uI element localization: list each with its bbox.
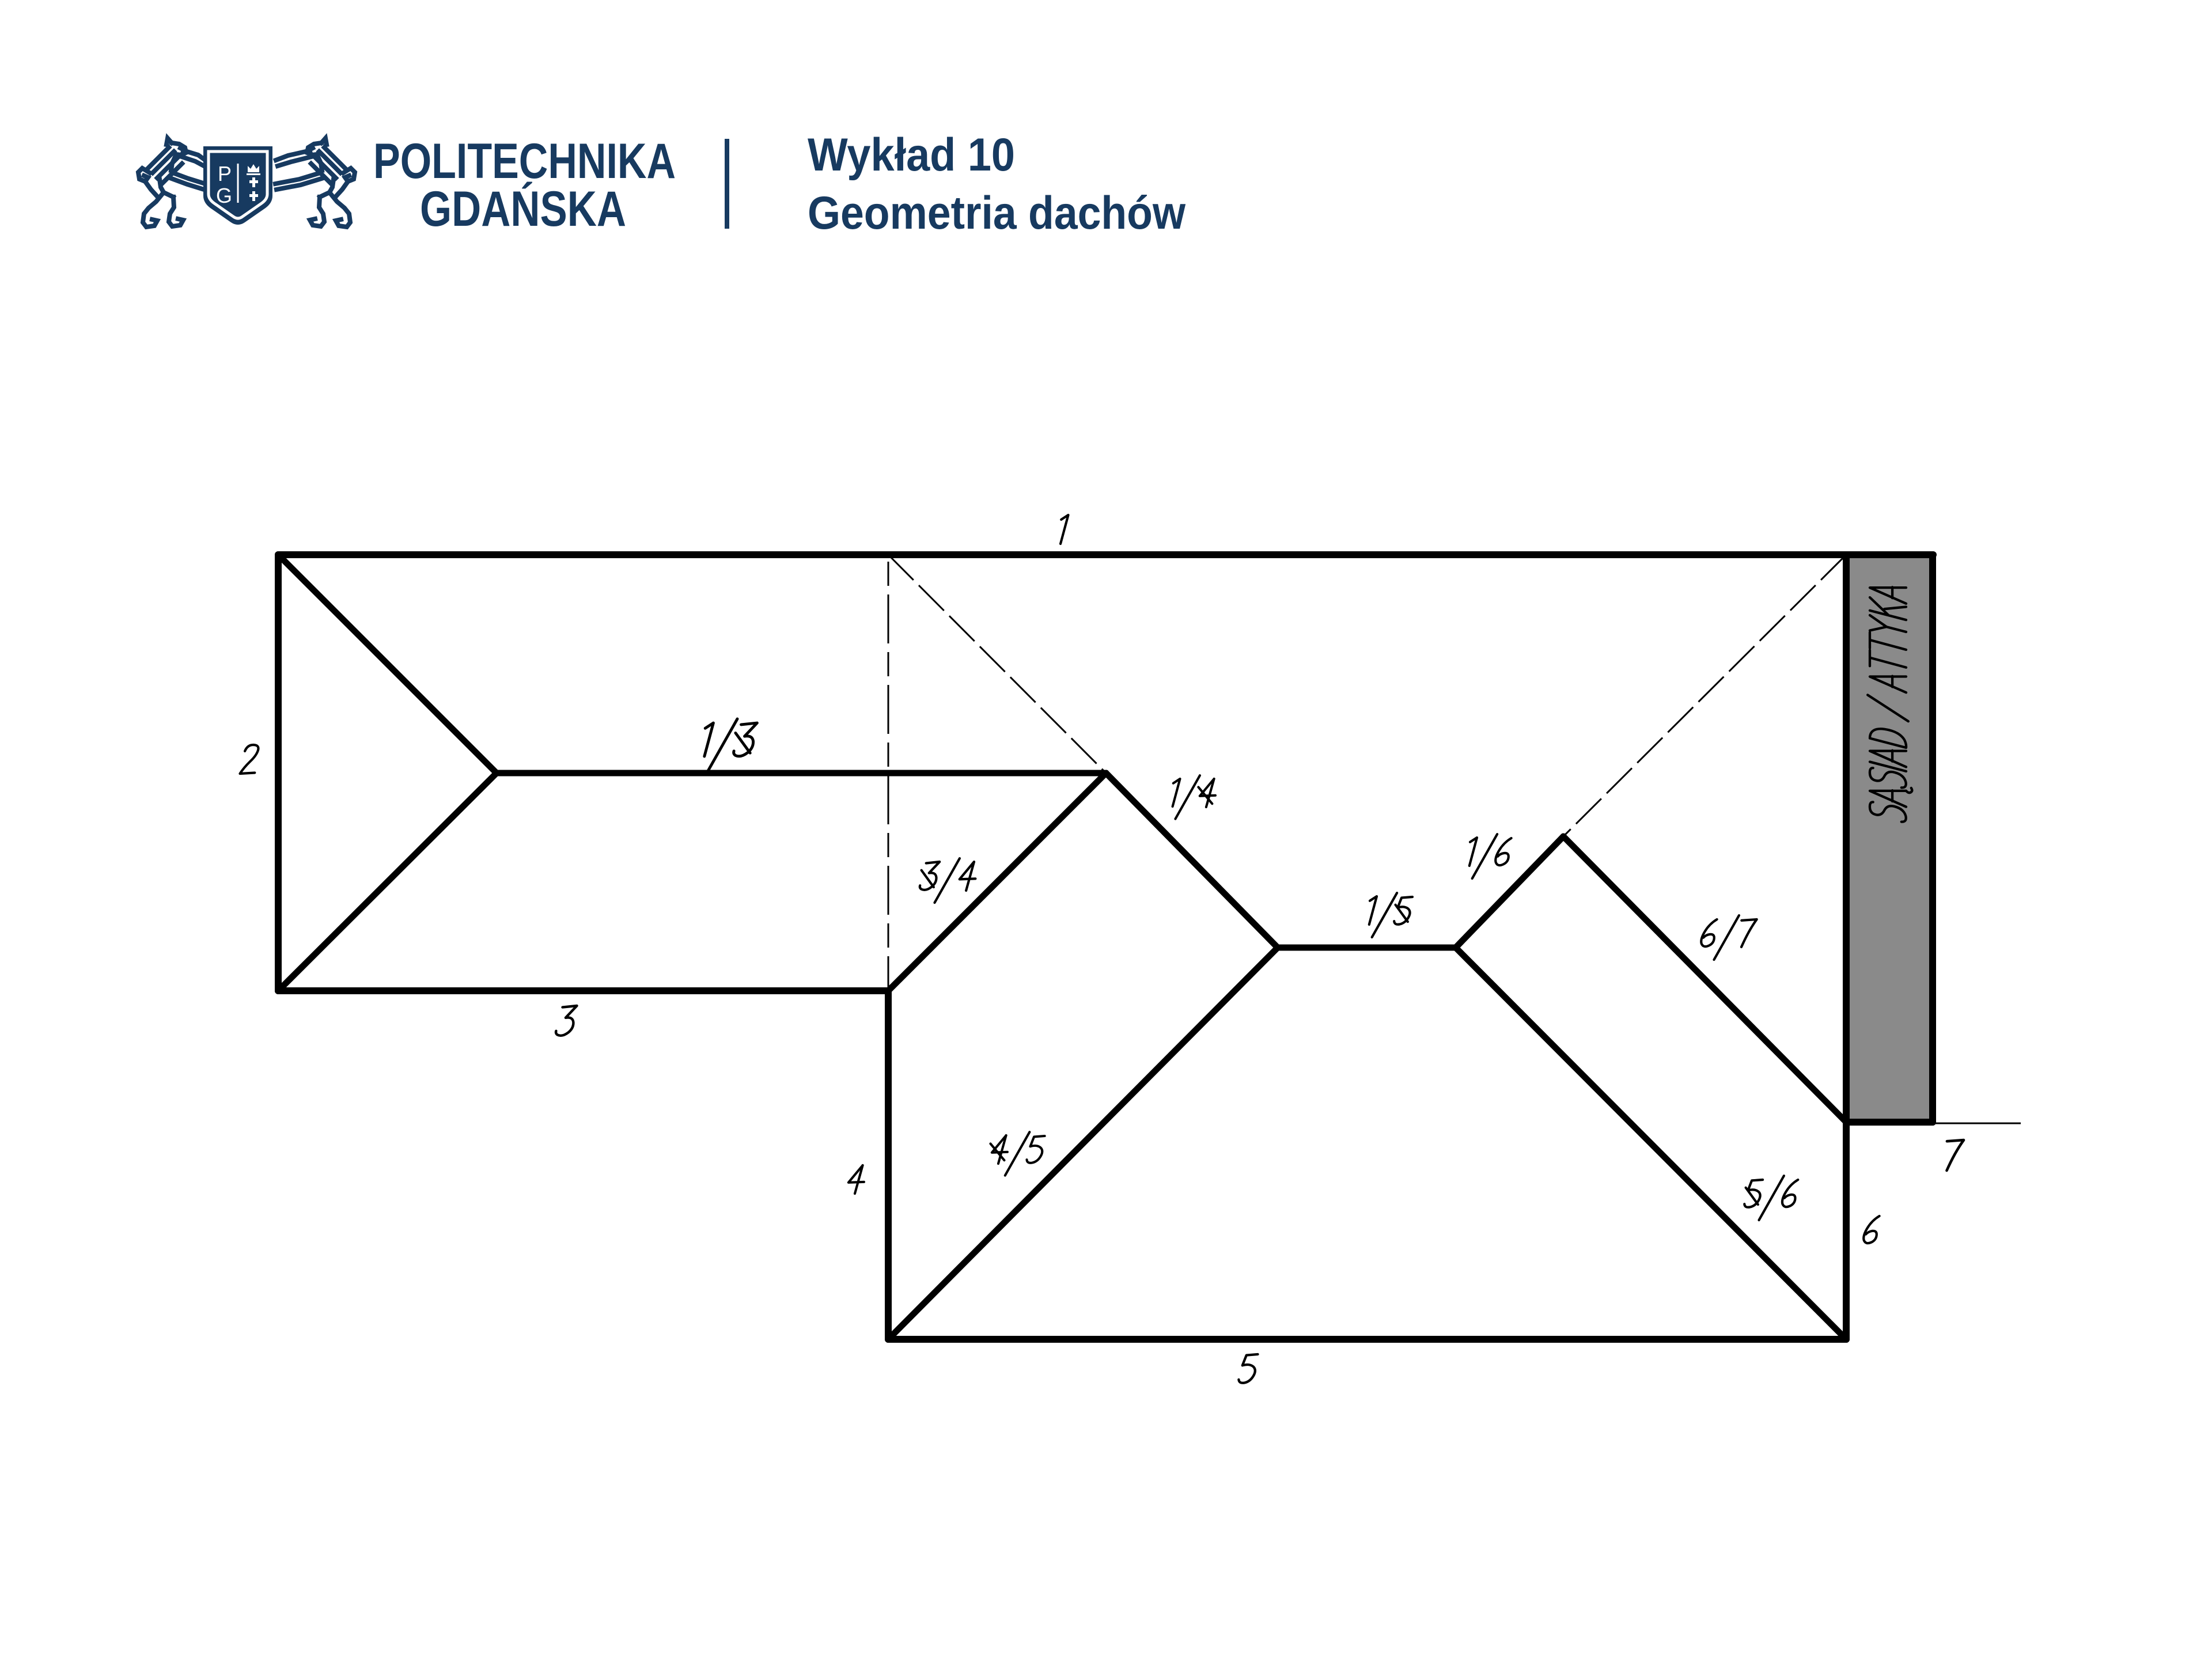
svg-text:Geometria dachów: Geometria dachów (808, 187, 1186, 239)
svg-text:P: P (218, 162, 232, 185)
svg-text:G: G (216, 184, 232, 207)
svg-text:GDAŃSKA: GDAŃSKA (420, 181, 626, 237)
svg-text:Wykład 10: Wykład 10 (808, 129, 1015, 181)
svg-text:POLITECHNIKA: POLITECHNIKA (373, 134, 676, 189)
